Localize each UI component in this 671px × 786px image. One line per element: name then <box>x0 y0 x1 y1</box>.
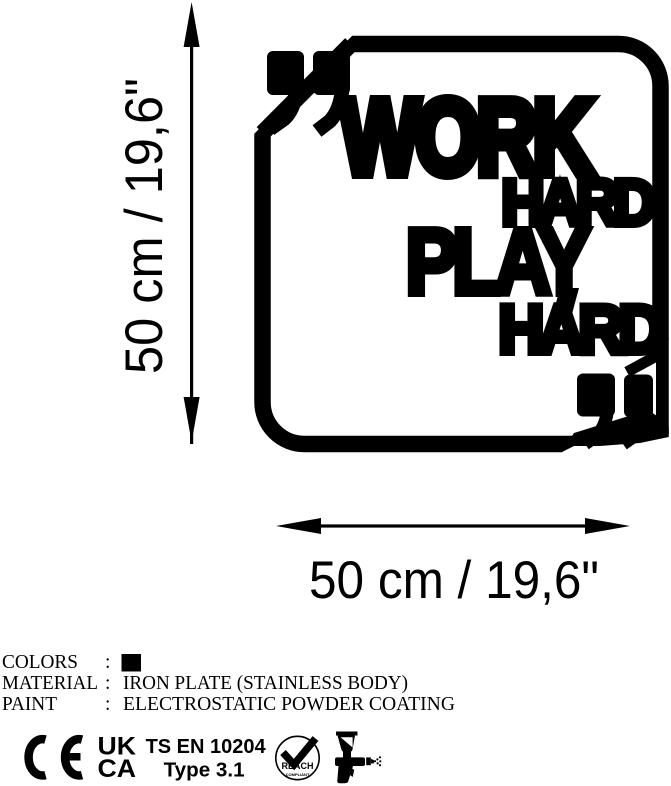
svg-text:50 cm / 19,6": 50 cm / 19,6" <box>309 551 599 610</box>
svg-text:ELECTROSTATIC POWDER COATING: ELECTROSTATIC POWDER COATING <box>123 694 455 715</box>
svg-text::: : <box>105 652 110 673</box>
svg-text:PAINT: PAINT <box>2 694 57 715</box>
svg-text:HARD: HARD <box>499 292 663 368</box>
svg-text:COMPLIANT: COMPLIANT <box>286 772 310 777</box>
svg-text::: : <box>105 673 110 694</box>
svg-text:TS EN 10204: TS EN 10204 <box>146 735 267 758</box>
svg-text:MATERIAL: MATERIAL <box>2 673 98 694</box>
svg-text:COLORS: COLORS <box>2 652 78 673</box>
svg-text::: : <box>105 694 110 715</box>
svg-text:CA: CA <box>98 755 137 783</box>
svg-text:Type 3.1: Type 3.1 <box>164 759 245 782</box>
svg-text:REACH: REACH <box>282 761 314 771</box>
svg-text:IRON PLATE (STAINLESS BODY): IRON PLATE (STAINLESS BODY) <box>123 673 408 694</box>
svg-text:50 cm / 19,6": 50 cm / 19,6" <box>115 78 174 374</box>
